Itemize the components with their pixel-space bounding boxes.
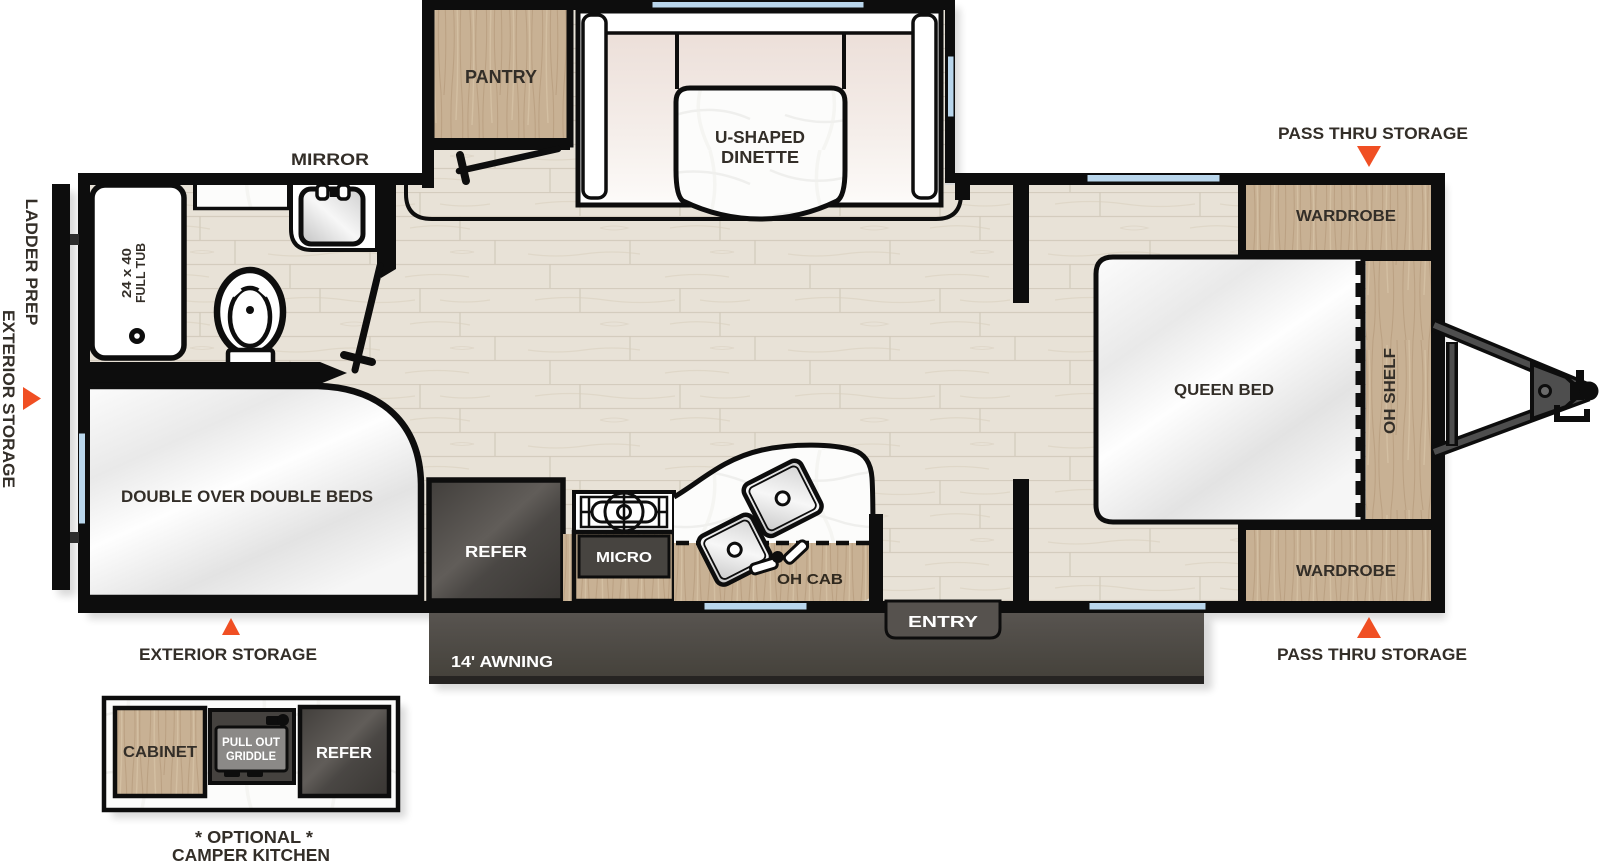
svg-text:14' AWNING: 14' AWNING bbox=[451, 654, 553, 671]
svg-text:PANTRY: PANTRY bbox=[465, 67, 537, 87]
svg-text:WARDROBE: WARDROBE bbox=[1296, 208, 1396, 225]
svg-text:REFER: REFER bbox=[316, 745, 372, 762]
svg-text:EXTERIOR STORAGE: EXTERIOR STORAGE bbox=[139, 645, 317, 664]
svg-text:DOUBLE OVER DOUBLE BEDS: DOUBLE OVER DOUBLE BEDS bbox=[121, 488, 373, 506]
svg-text:QUEEN BED: QUEEN BED bbox=[1174, 382, 1274, 399]
svg-text:LADDER PREP: LADDER PREP bbox=[22, 199, 41, 326]
svg-text:DINETTE: DINETTE bbox=[721, 147, 799, 167]
svg-text:WARDROBE: WARDROBE bbox=[1296, 563, 1396, 580]
svg-text:REFER: REFER bbox=[465, 544, 528, 561]
svg-text:CABINET: CABINET bbox=[123, 744, 198, 761]
svg-text:FULL TUB: FULL TUB bbox=[134, 243, 148, 303]
svg-text:MICRO: MICRO bbox=[596, 549, 652, 566]
svg-text:* OPTIONAL *: * OPTIONAL * bbox=[195, 827, 313, 847]
svg-text:MIRROR: MIRROR bbox=[291, 151, 369, 169]
svg-text:EXTERIOR STORAGE: EXTERIOR STORAGE bbox=[0, 310, 18, 488]
svg-text:PULL OUT: PULL OUT bbox=[222, 735, 281, 749]
svg-text:PASS THRU STORAGE: PASS THRU STORAGE bbox=[1277, 645, 1467, 664]
svg-text:24 x 40: 24 x 40 bbox=[120, 248, 134, 298]
svg-text:GRIDDLE: GRIDDLE bbox=[226, 749, 276, 763]
svg-text:ENTRY: ENTRY bbox=[908, 614, 979, 631]
svg-text:OH SHELF: OH SHELF bbox=[1382, 348, 1399, 434]
svg-text:OH CAB: OH CAB bbox=[777, 571, 843, 588]
svg-text:CAMPER KITCHEN: CAMPER KITCHEN bbox=[172, 845, 330, 863]
svg-text:PASS THRU STORAGE: PASS THRU STORAGE bbox=[1278, 124, 1468, 143]
svg-text:U-SHAPED: U-SHAPED bbox=[715, 127, 805, 147]
